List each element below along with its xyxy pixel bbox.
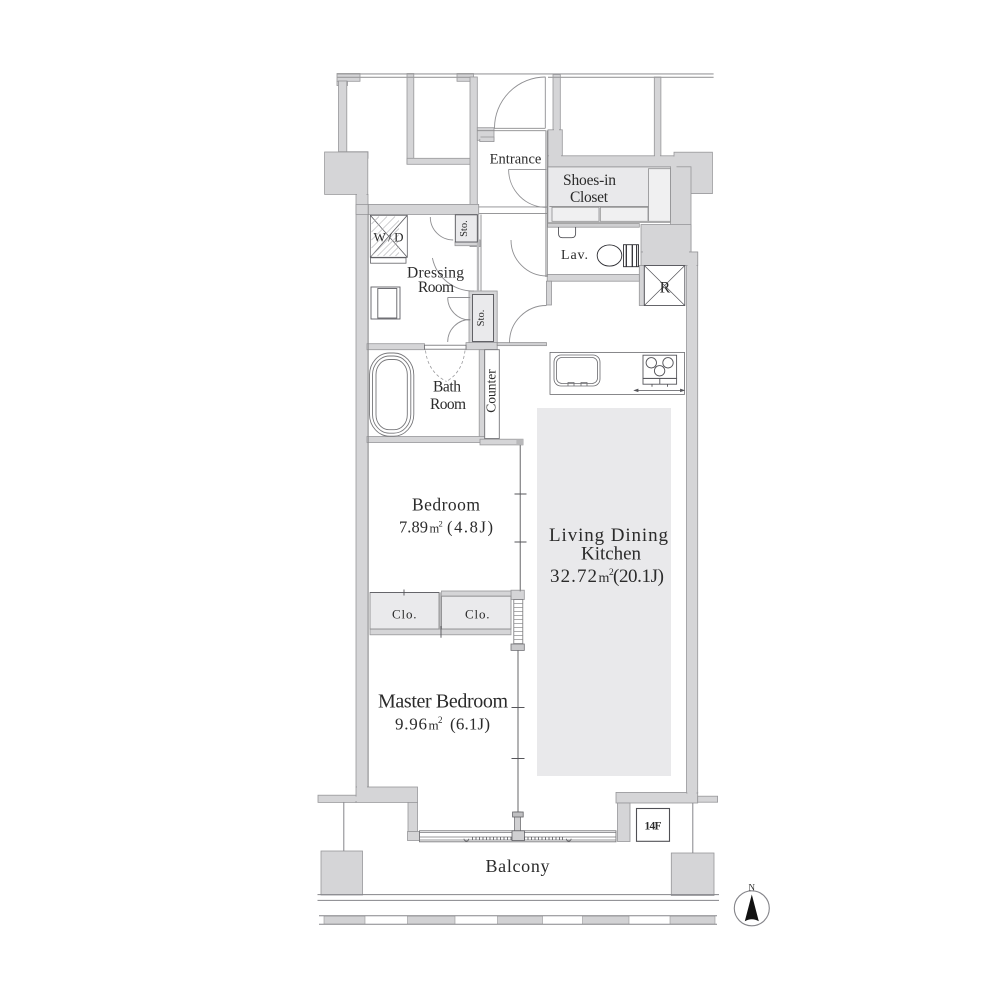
- svg-text:m: m: [599, 571, 610, 586]
- svg-text:Sto.: Sto.: [459, 220, 470, 237]
- svg-text:Bedroom: Bedroom: [412, 495, 480, 515]
- svg-text:R: R: [660, 279, 671, 296]
- svg-text:Counter: Counter: [484, 369, 499, 413]
- svg-text:(20.1J): (20.1J): [613, 566, 664, 587]
- svg-text:2: 2: [438, 715, 443, 725]
- svg-text:W/D: W/D: [374, 230, 404, 245]
- svg-text:Sto.: Sto.: [476, 310, 487, 327]
- svg-text:Shoes-in: Shoes-in: [563, 172, 616, 189]
- svg-text:Master Bedroom: Master Bedroom: [378, 691, 508, 713]
- svg-text:Bath: Bath: [433, 379, 461, 396]
- svg-text:Entrance: Entrance: [490, 152, 542, 168]
- svg-text:Closet: Closet: [570, 189, 609, 206]
- svg-text:N: N: [749, 882, 756, 892]
- svg-text:Clo.: Clo.: [392, 607, 417, 622]
- svg-text:(4.8J): (4.8J): [447, 518, 493, 537]
- svg-text:(6.1J): (6.1J): [450, 715, 490, 734]
- svg-text:9.96: 9.96: [395, 715, 427, 734]
- svg-text:32.72: 32.72: [550, 566, 597, 587]
- svg-text:Room: Room: [430, 396, 466, 413]
- svg-text:Lav.: Lav.: [561, 248, 588, 263]
- svg-text:7.89: 7.89: [399, 518, 428, 537]
- svg-text:Kitchen: Kitchen: [581, 544, 642, 565]
- svg-text:Room: Room: [418, 279, 454, 296]
- svg-text:Clo.: Clo.: [465, 607, 490, 622]
- svg-text:Balcony: Balcony: [486, 856, 550, 876]
- svg-text:14F: 14F: [645, 820, 662, 832]
- svg-text:2: 2: [439, 519, 443, 529]
